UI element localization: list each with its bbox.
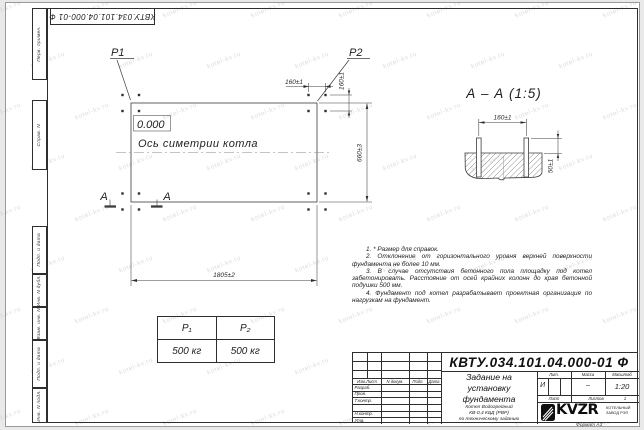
sheets-label: Листов <box>588 396 603 401</box>
loads-table: P₁ P₂ 500 кг 500 кг <box>157 316 275 363</box>
scale-value: 1:20 <box>615 382 630 391</box>
dim-depth <box>319 103 372 202</box>
loads-header-row: P₁ P₂ <box>158 317 275 340</box>
title-line-3: фундамента <box>441 394 537 405</box>
plan-view: P1 P2 0.000 Ось симетрии котла 160±1 160… <box>99 47 372 286</box>
col-data: Дата <box>428 379 439 384</box>
dim-160h-text: 160±1 <box>285 79 303 86</box>
load-leaders <box>110 59 370 102</box>
section-dim-arrows <box>479 121 559 158</box>
format-label: Формат А3 <box>576 423 602 428</box>
subtitle-line-3: по техническому заданию <box>441 417 537 423</box>
lit-header: Лит. <box>549 372 559 377</box>
section-title: А – А (1:5) <box>465 86 542 101</box>
dim-660-text: 660±3 <box>357 144 364 162</box>
note-3: 3. В случае отсутствия бетонного пола пл… <box>352 268 592 290</box>
section-view: А – А (1:5) 160±1 50±1 <box>465 86 562 181</box>
title-block: Изм.Лист N докум. Подп. Дата Разраб. Про… <box>352 352 638 423</box>
section-dim-50-text: 50±1 <box>548 158 555 173</box>
kvzr-logo-subtext: КОТЕЛЬНЫЙ ЗАВОД РЭП <box>606 406 630 416</box>
note-4: 4. Фундамент под котел разрабатывает про… <box>352 290 592 305</box>
sheet-label: Лист <box>549 396 560 401</box>
anchor-stud-left <box>477 138 482 177</box>
col-izm-list: Изм.Лист <box>357 379 377 384</box>
anchor-stud-right <box>524 138 529 177</box>
col-podp: Подп. <box>412 379 423 384</box>
kvzr-logo-text: KVZR <box>556 402 598 418</box>
row-tkontr: Т.контр. <box>355 398 373 403</box>
loads-value-row: 500 кг 500 кг <box>158 340 275 363</box>
elevation-label: 0.000 <box>137 119 165 131</box>
mass-value: – <box>586 382 590 389</box>
mass-header: Масса <box>582 372 594 377</box>
note-2: 2. Отклонение от горизонтального уровня … <box>352 253 592 268</box>
title-block-doc-number: КВТУ.034.101.04.000-01 Ф <box>441 354 637 370</box>
scale-header: Масштаб <box>612 372 632 377</box>
title-line-1: Задание на <box>441 372 537 383</box>
row-prov: Пров. <box>355 391 367 396</box>
kvzr-emblem-icon <box>541 404 555 421</box>
section-letter-1: А <box>99 191 107 203</box>
document-subtitle: Котел Водогрейный КВ-0,4 КБД (РВР) по те… <box>441 405 537 423</box>
technical-notes: 1. * Размер для справок. 2. Отклонение о… <box>352 246 592 304</box>
document-title: Задание на установку фундамента <box>441 372 537 405</box>
section-dim-160-text: 160±1 <box>493 115 511 122</box>
row-nkontr: Н.контр. <box>355 411 374 416</box>
loads-value-p1: 500 кг <box>158 340 217 363</box>
lit-value: И <box>540 382 545 389</box>
drawing-sheet: kotel-kv.rukotel-kv.rukotel-kv.rukotel-k… <box>0 0 644 430</box>
col-n-dokum: N докум. <box>387 379 404 384</box>
title-line-2: установку <box>441 383 537 394</box>
loads-header-p1: P₁ <box>158 317 217 340</box>
section-dim-bolts <box>479 119 527 136</box>
section-letter-2: А <box>162 191 170 203</box>
loads-header-p2: P₂ <box>216 317 275 340</box>
dim-1805-text: 1805±2 <box>213 272 235 279</box>
loads-value-p2: 500 кг <box>216 340 275 363</box>
section-cut-marks <box>105 200 163 207</box>
load-p1-label: P1 <box>111 47 124 59</box>
load-p2-label: P2 <box>349 47 362 59</box>
dim-160v-text: 160±1 <box>339 72 346 90</box>
dimension-arrows <box>132 85 369 282</box>
row-razrab: Разраб. <box>355 385 371 390</box>
symmetry-axis-label: Ось симетрии котла <box>138 138 258 150</box>
sheets-value: 1 <box>624 396 627 401</box>
row-utv: Утв. <box>355 418 365 423</box>
kvzr-sub-line-2: ЗАВОД РЭП <box>606 411 630 416</box>
